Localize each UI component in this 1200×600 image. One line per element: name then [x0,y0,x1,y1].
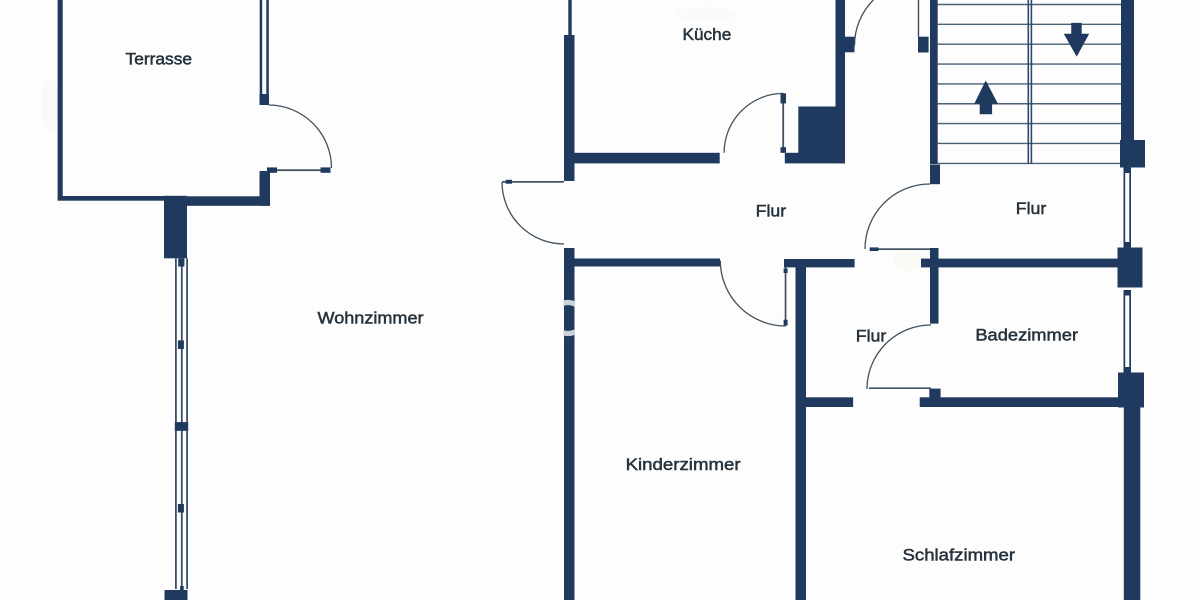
svg-text:Flur: Flur [856,327,887,346]
svg-text:Schlafzimmer: Schlafzimmer [903,545,1016,564]
svg-text:Badezimmer: Badezimmer [975,325,1078,344]
svg-text:Kinderzimmer: Kinderzimmer [626,455,741,474]
svg-text:Küche: Küche [683,25,732,44]
svg-text:Flur: Flur [1016,199,1047,218]
svg-text:Terrasse: Terrasse [126,50,193,69]
svg-text:Wohnzimmer: Wohnzimmer [318,309,424,328]
svg-text:Flur: Flur [756,202,787,221]
